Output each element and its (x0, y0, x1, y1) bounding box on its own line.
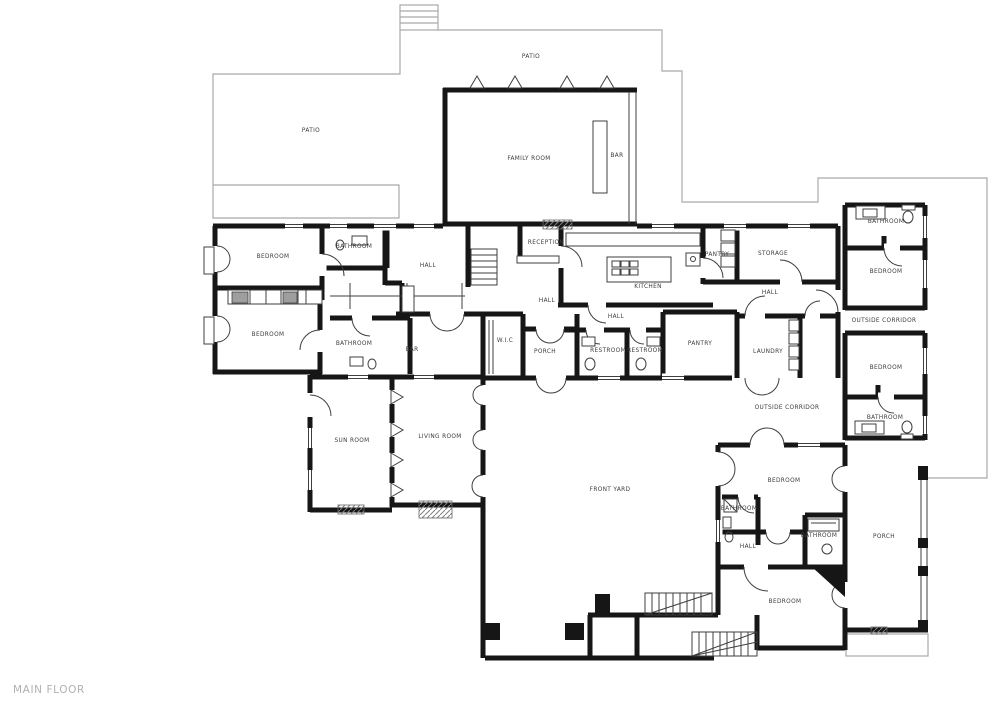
room-label-hall-se: HALL (740, 544, 756, 550)
floor-plan-page: PATIO PATIO FAMILY ROOM BAR BEDROOM BATH… (0, 0, 992, 712)
room-label-patio-left: PATIO (302, 128, 320, 134)
room-label-outside-corridor-s: OUTSIDE CORRIDOR (755, 405, 820, 411)
room-label-porch-east: PORCH (873, 534, 895, 540)
room-label-restroom-2: RESTROOM (627, 348, 663, 354)
room-label-family-room: FAMILY ROOM (507, 156, 550, 162)
room-label-living-room: LIVING ROOM (418, 434, 461, 440)
room-label-hall-nw: HALL (420, 263, 436, 269)
room-label-hall-ne: HALL (762, 290, 778, 296)
room-label-bar-top: BAR (610, 153, 623, 159)
room-label-front-yard: FRONT YARD (590, 487, 631, 493)
room-label-bedroom-se-2: BEDROOM (769, 599, 802, 605)
room-label-wic: W.I.C (497, 338, 513, 344)
floor-title: MAIN FLOOR (13, 684, 85, 696)
room-label-laundry: LAUNDRY (753, 349, 783, 355)
room-label-bedroom-ne: BEDROOM (870, 269, 903, 275)
room-label-patio-top: PATIO (522, 54, 540, 60)
room-label-bathroom-se-2: BATHROOM (801, 533, 837, 539)
wall-openings (215, 216, 925, 608)
room-label-bathroom-e: BATHROOM (867, 415, 903, 421)
room-label-reception: RECEPTION (528, 240, 564, 246)
room-label-bedroom-nw: BEDROOM (257, 254, 290, 260)
room-label-restroom-1: RESTROOM (590, 348, 626, 354)
room-label-storage: STORAGE (758, 251, 788, 257)
room-label-bathroom-nw: BATHROOM (336, 244, 372, 250)
room-label-sun-room: SUN ROOM (334, 438, 369, 444)
room-label-outside-corridor-e: OUTSIDE CORRIDOR (852, 318, 917, 324)
room-label-bar-west: BAR (405, 347, 418, 353)
room-label-kitchen: KITCHEN (634, 284, 662, 290)
room-label-bedroom-w: BEDROOM (252, 332, 285, 338)
room-label-bathroom-ne: BATHROOM (868, 219, 904, 225)
room-label-bedroom-e: BEDROOM (870, 365, 903, 371)
room-label-pantry-north: PANTRY (705, 252, 729, 258)
room-label-hall-center: HALL (539, 298, 555, 304)
room-label-pantry-south: PANTRY (688, 341, 712, 347)
room-label-bathroom-se-1: BATHROOM (721, 506, 757, 512)
room-label-hall-mid: HALL (608, 314, 624, 320)
floor-plan-drawing (0, 0, 992, 712)
room-label-porch-center: PORCH (534, 349, 556, 355)
room-label-bathroom-w: BATHROOM (336, 341, 372, 347)
room-label-bedroom-se-1: BEDROOM (768, 478, 801, 484)
